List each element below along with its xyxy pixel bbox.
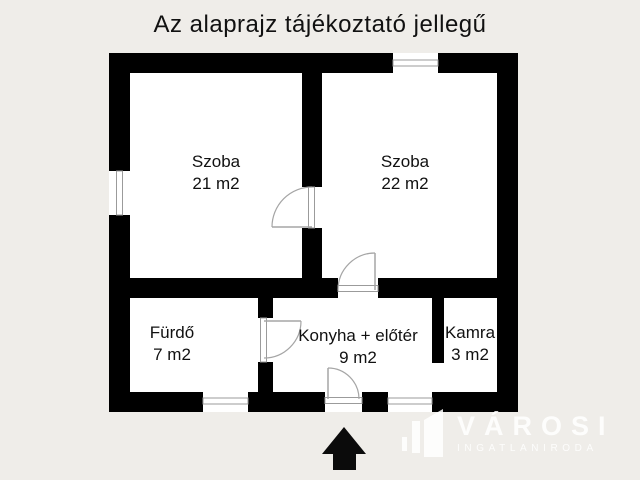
room-name: Konyha + előtér xyxy=(298,325,418,347)
room-label-szoba-1: Szoba 21 m2 xyxy=(192,151,240,195)
watermark: VÁROSI INGATLANIRODA xyxy=(402,409,615,459)
room-label-furdo: Fürdő 7 m2 xyxy=(150,322,194,366)
entrance-arrow-icon xyxy=(322,427,366,470)
wall-kamra-divider xyxy=(432,298,444,363)
wall-bottom-1 xyxy=(109,392,203,412)
watermark-text: VÁROSI INGATLANIRODA xyxy=(457,409,615,455)
room-label-konyha-eloter: Konyha + előtér 9 m2 xyxy=(298,325,418,369)
wall-furdo-divider-lower xyxy=(258,362,273,392)
wall-middle-left xyxy=(130,278,338,298)
wall-left-upper xyxy=(109,53,130,171)
page-title: Az alaprajz tájékoztató jellegű xyxy=(0,11,640,39)
room-area: 9 m2 xyxy=(298,347,418,369)
room-name: Fürdő xyxy=(150,322,194,344)
watermark-brand: VÁROSI xyxy=(457,412,615,440)
wall-divider-szoba-upper xyxy=(302,73,322,187)
room-label-kamra: Kamra 3 m2 xyxy=(445,322,495,366)
room-area: 21 m2 xyxy=(192,173,240,195)
floorplan-canvas: Az alaprajz tájékoztató jellegű xyxy=(0,0,640,480)
room-name: Szoba xyxy=(381,151,429,173)
room-area: 22 m2 xyxy=(381,173,429,195)
wall-divider-szoba-lower xyxy=(302,228,322,278)
wall-furdo-divider-upper xyxy=(258,298,273,318)
room-area: 7 m2 xyxy=(150,344,194,366)
wall-bottom-2 xyxy=(248,392,325,412)
room-name: Kamra xyxy=(445,322,495,344)
room-label-szoba-2: Szoba 22 m2 xyxy=(381,151,429,195)
wall-right xyxy=(497,53,518,412)
wall-top-left xyxy=(109,53,393,73)
watermark-logo-buildings-icon xyxy=(402,409,448,459)
watermark-subtitle: INGATLANIRODA xyxy=(457,443,615,455)
wall-middle-right xyxy=(378,278,497,298)
wall-bottom-3 xyxy=(362,392,388,412)
room-name: Szoba xyxy=(192,151,240,173)
wall-left-lower xyxy=(109,215,130,412)
room-area: 3 m2 xyxy=(445,344,495,366)
